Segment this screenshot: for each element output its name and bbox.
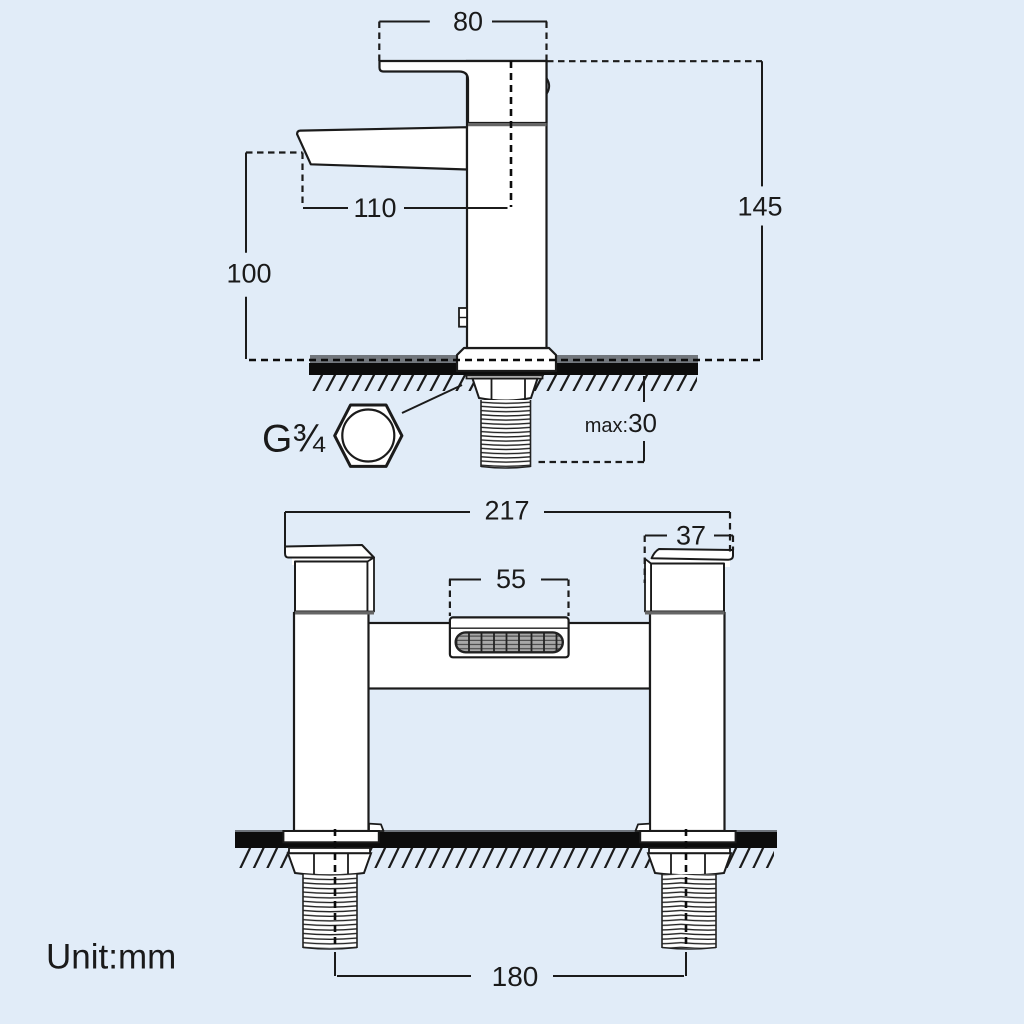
svg-text:80: 80 bbox=[453, 7, 483, 37]
svg-text:max:30: max:30 bbox=[585, 408, 657, 438]
svg-text:110: 110 bbox=[353, 193, 396, 223]
svg-text:145: 145 bbox=[737, 192, 782, 222]
svg-text:100: 100 bbox=[226, 259, 271, 289]
svg-text:217: 217 bbox=[484, 496, 529, 526]
svg-text:G¾: G¾ bbox=[262, 418, 325, 461]
svg-text:180: 180 bbox=[492, 961, 539, 992]
svg-text:37: 37 bbox=[676, 521, 706, 551]
svg-text:Unit:mm: Unit:mm bbox=[46, 938, 176, 977]
svg-text:55: 55 bbox=[496, 564, 526, 594]
